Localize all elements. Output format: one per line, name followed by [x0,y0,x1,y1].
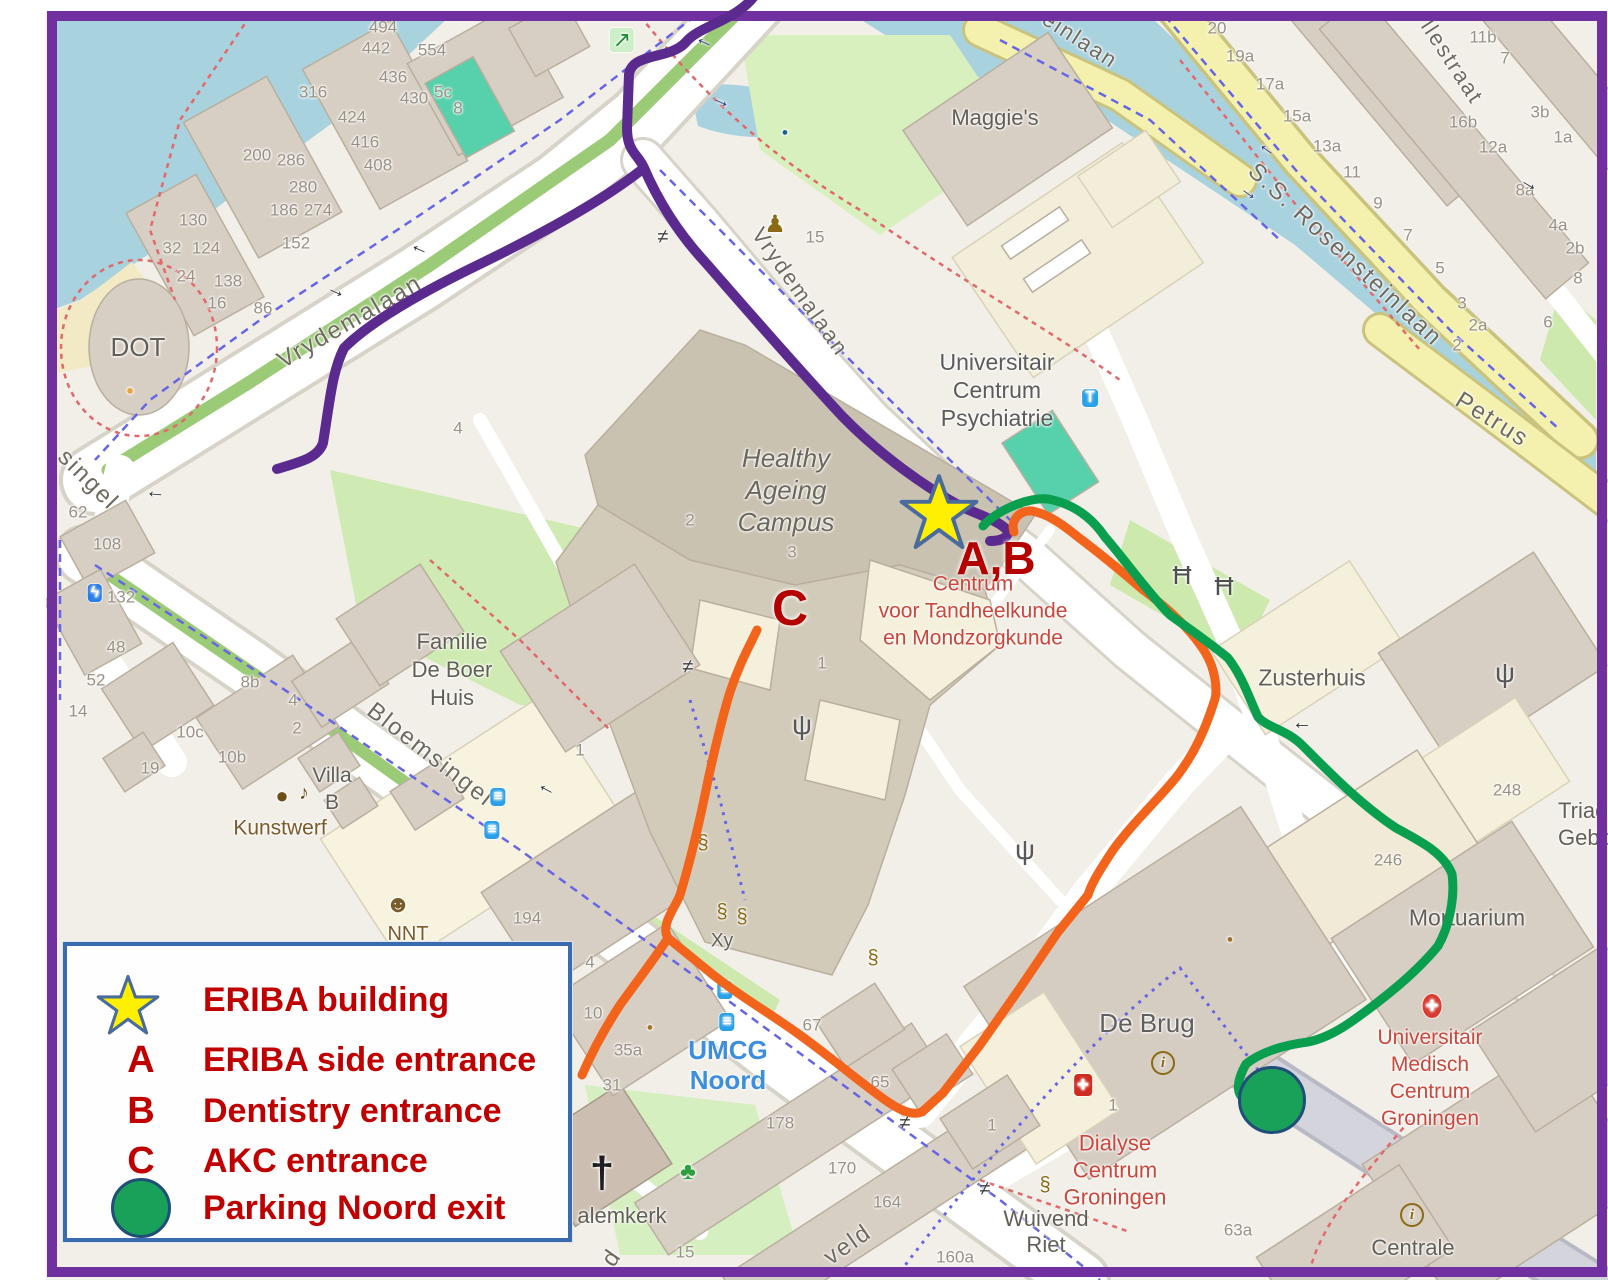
legend-label: Parking Noord exit [203,1189,505,1228]
legend-row-entrance-b: B Dentistry entrance [95,1085,502,1137]
legend-label: Dentistry entrance [203,1092,502,1131]
legend-label: AKC entrance [203,1142,428,1181]
entrance-annotation-c: C [772,583,808,633]
parking-exit-legend-icon [95,1178,187,1238]
map-figure: VrydemalaanVrydemalaanBloemsingelS.S. Ro… [0,0,1608,1280]
legend-row-parking-exit: Parking Noord exit [95,1182,505,1234]
legend-box: ERIBA building A ERIBA side entrance B D… [63,942,572,1242]
entrance-c-symbol: C [95,1140,187,1183]
parking-noord-exit-icon [1238,1066,1306,1134]
legend-row-eriba-building: ERIBA building [95,974,449,1026]
legend-label: ERIBA side entrance [203,1041,536,1080]
entrance-b-symbol: B [95,1090,187,1133]
entrance-a-symbol: A [95,1039,187,1082]
legend-label: ERIBA building [203,981,449,1020]
legend-row-entrance-a: A ERIBA side entrance [95,1034,536,1086]
